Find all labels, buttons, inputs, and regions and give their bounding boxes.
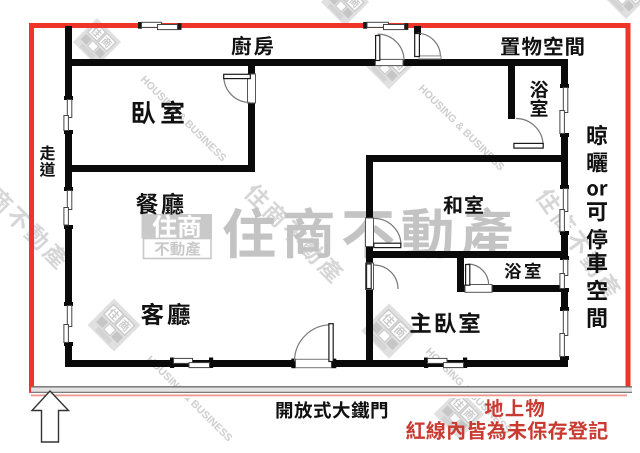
svg-text:廚房: 廚房 xyxy=(231,30,276,60)
svg-text:客廳: 客廳 xyxy=(141,296,194,330)
svg-text:開放式大鐵門: 開放式大鐵門 xyxy=(275,397,389,423)
svg-text:道: 道 xyxy=(39,157,55,181)
svg-text:浴室: 浴室 xyxy=(504,259,544,284)
svg-text:紅線內皆為未保存登記: 紅線內皆為未保存登記 xyxy=(406,415,609,444)
svg-text:間: 間 xyxy=(586,301,608,333)
svg-text:室: 室 xyxy=(529,95,548,122)
svg-text:主臥室: 主臥室 xyxy=(409,307,483,339)
svg-text:臥室: 臥室 xyxy=(130,94,189,130)
svg-text:不動產: 不動產 xyxy=(154,238,201,260)
svg-text:和室: 和室 xyxy=(443,190,485,219)
svg-text:餐廳: 餐廳 xyxy=(136,186,187,220)
svg-text:置物空間: 置物空間 xyxy=(500,30,586,60)
